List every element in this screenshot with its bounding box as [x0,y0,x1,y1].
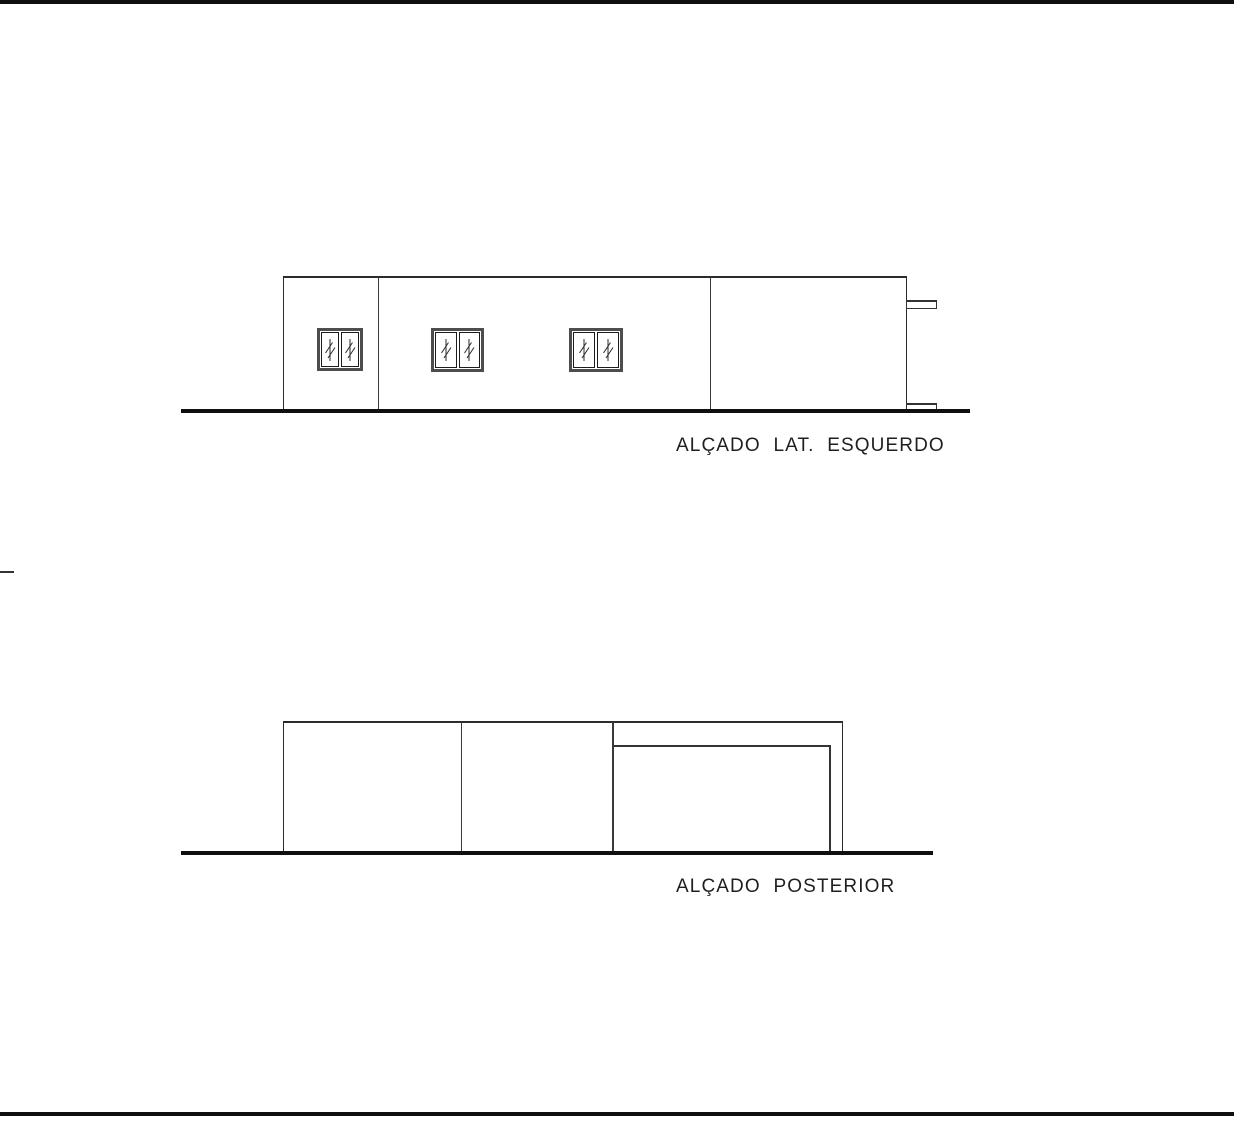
window-pane [321,332,339,367]
wall-joint-line [710,277,711,411]
sheet-top-border [0,0,1234,4]
left-edge-tick [0,571,14,573]
wall-joint-line [378,277,379,411]
opening-header-line [613,745,830,747]
drawing-sheet: ALÇADO LAT. ESQUERDO ALÇADO POSTERIOR [0,0,1234,1123]
double-casement-window [569,328,623,372]
glazing-icon [440,338,452,362]
wall-edge-left [283,277,284,411]
elevation-caption: ALÇADO POSTERIOR [676,877,895,897]
glazing-icon [344,338,356,362]
glazing-icon [463,338,475,362]
wall-edge-right [842,722,843,853]
roof-line [283,276,907,278]
window-pane [341,332,359,367]
glazing-icon [602,338,614,362]
sheet-bottom-border [0,1112,1234,1116]
wall-edge-left [283,722,284,853]
wall-joint-line [612,722,614,853]
wall-edge-right [906,277,907,411]
beam-projection-top [906,300,937,309]
glazing-icon [324,338,336,362]
window-pane [597,332,619,368]
roof-line [283,721,843,723]
window-pane [459,332,481,368]
opening-jamb-line [829,745,831,853]
ground-line [181,409,970,413]
double-casement-window [431,328,484,372]
window-pane [573,332,595,368]
ground-line [181,851,933,855]
glazing-icon [578,338,590,362]
elevation-caption: ALÇADO LAT. ESQUERDO [676,436,945,456]
wall-joint-line [461,722,462,853]
double-casement-window [317,328,363,371]
window-pane [435,332,457,368]
